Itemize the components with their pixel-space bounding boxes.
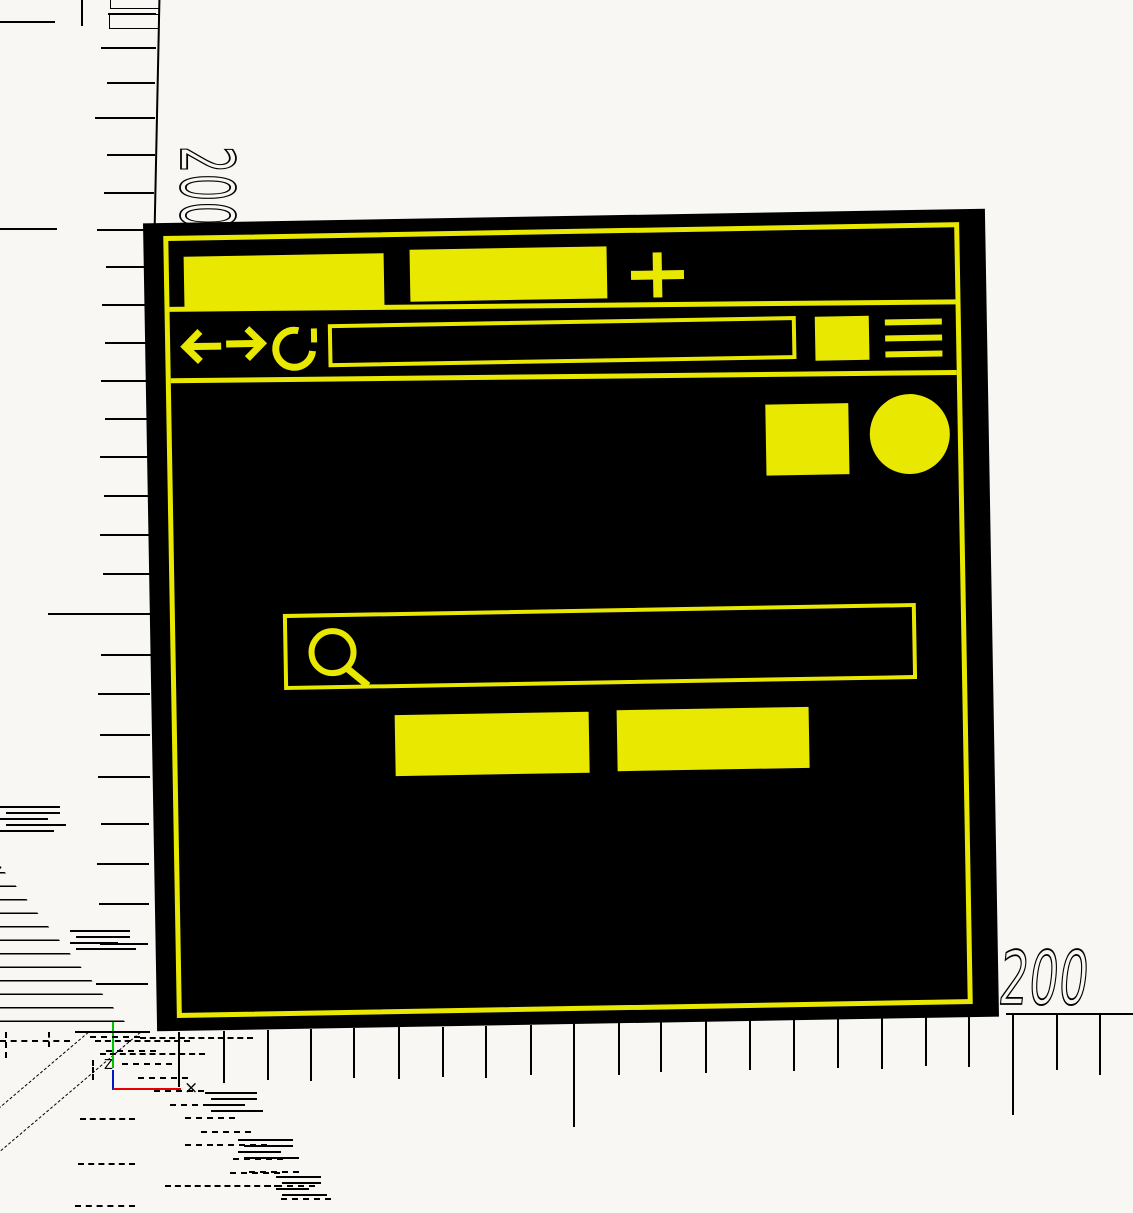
hamburger-icon bbox=[885, 318, 942, 325]
dashed-construction-line bbox=[75, 1205, 135, 1207]
url-bar[interactable] bbox=[328, 316, 797, 367]
plus-icon bbox=[653, 252, 663, 297]
ruler-tick-bottom bbox=[310, 1029, 312, 1081]
micro-glyph-line bbox=[6, 812, 60, 814]
x-axis-marker: × bbox=[184, 1080, 198, 1097]
left-ruler-label: 200 bbox=[164, 146, 247, 230]
reload-icon[interactable] bbox=[269, 321, 324, 374]
micro-glyph-line bbox=[238, 1151, 281, 1153]
micro-glyph-line bbox=[276, 1176, 321, 1178]
micro-glyph-line bbox=[282, 1182, 321, 1184]
hatch-dash-row bbox=[281, 1198, 331, 1200]
wireframe-line bbox=[75, 1031, 150, 1033]
micro-glyph-line bbox=[244, 1145, 293, 1147]
micro-glyph-line bbox=[76, 936, 130, 938]
hatch-dash-row bbox=[201, 1131, 251, 1133]
ruler-tick-bottom bbox=[530, 1025, 532, 1075]
dashed-construction-line bbox=[100, 1053, 205, 1055]
ruler-tick-left bbox=[48, 613, 151, 615]
ruler-tick-left bbox=[100, 734, 150, 736]
dashed-construction-line bbox=[5, 1032, 7, 1058]
dashed-construction-line bbox=[80, 1118, 135, 1120]
ruler-tick-left bbox=[101, 823, 149, 825]
ruler-tick-left bbox=[108, 13, 156, 15]
micro-glyph-line bbox=[6, 824, 66, 826]
dashed-diagonal-left bbox=[0, 1032, 89, 1213]
placeholder-square bbox=[765, 403, 849, 475]
micro-glyph-line bbox=[0, 806, 60, 808]
micro-glyph-line bbox=[0, 830, 54, 832]
dashed-construction-line bbox=[48, 1032, 50, 1047]
dashed-construction-line bbox=[78, 1163, 135, 1165]
ruler-tick-bottom bbox=[968, 1015, 970, 1067]
dashed-diagonal-right bbox=[0, 1032, 141, 1213]
ruler-tick-left bbox=[104, 192, 154, 194]
ruler-tick-bottom bbox=[1012, 1015, 1014, 1115]
ruler-tick-left bbox=[101, 47, 156, 49]
dashed-construction-line bbox=[95, 1040, 190, 1042]
hatch-dash-row bbox=[265, 1185, 315, 1187]
ruler-tick-bottom bbox=[660, 1022, 662, 1072]
ruler-tick-bottom bbox=[618, 1023, 620, 1075]
ruler-tick-left bbox=[95, 117, 155, 119]
hamburger-icon bbox=[885, 334, 942, 341]
bottom-ruler-label: 200 bbox=[995, 938, 1093, 1021]
ruler-tick-bottom bbox=[1099, 1015, 1101, 1075]
hatch-dash-row bbox=[185, 1117, 235, 1119]
ruler-tick-bottom bbox=[267, 1030, 269, 1080]
browser-window bbox=[143, 209, 999, 1032]
magnifier-icon bbox=[305, 626, 376, 689]
micro-glyph-line bbox=[0, 818, 48, 820]
hamburger-icon bbox=[885, 350, 942, 357]
micro-glyph-line bbox=[205, 1092, 257, 1094]
ruler-tick-bottom bbox=[925, 1016, 927, 1066]
micro-glyph-line bbox=[70, 930, 130, 932]
hatch-dash-row bbox=[106, 1050, 156, 1052]
hatch-dash-row bbox=[90, 1036, 140, 1038]
ruler-tick-left bbox=[104, 495, 152, 497]
button-1[interactable] bbox=[395, 712, 590, 776]
hatch-dash-row bbox=[249, 1171, 299, 1173]
ruler-tick-left bbox=[97, 863, 149, 865]
search-input[interactable] bbox=[283, 603, 917, 690]
ruler-tick-bottom bbox=[1056, 1015, 1058, 1070]
ruler-tick-left bbox=[101, 654, 151, 656]
micro-glyph-line bbox=[211, 1110, 263, 1112]
micro-glyph-line bbox=[276, 1188, 309, 1190]
micro-glyph-line bbox=[282, 1194, 327, 1196]
ruler-tick-left bbox=[99, 903, 149, 905]
hatch-dash-row bbox=[154, 1090, 204, 1092]
ruler-tick-bottom bbox=[353, 1028, 355, 1078]
ruler-tick-left bbox=[98, 693, 150, 695]
tab-1[interactable] bbox=[184, 253, 385, 309]
ruler-tick-left bbox=[103, 573, 151, 575]
ruler-tick-left bbox=[98, 776, 150, 778]
tab-2[interactable] bbox=[410, 246, 608, 301]
wireframe-fragment bbox=[110, 0, 160, 9]
ruler-tick-left bbox=[107, 82, 155, 84]
dashed-construction-line bbox=[165, 1185, 280, 1187]
wireframe-line bbox=[0, 228, 57, 230]
micro-glyph-line bbox=[205, 1104, 245, 1106]
dashed-construction-line bbox=[185, 1144, 213, 1146]
z-axis-blue bbox=[112, 1070, 114, 1090]
button-2[interactable] bbox=[617, 707, 810, 771]
ruler-tick-bottom bbox=[749, 1020, 751, 1070]
ruler-tick-left bbox=[100, 534, 152, 536]
micro-glyph-line bbox=[70, 942, 118, 944]
ruler-tick-bottom bbox=[398, 1027, 400, 1079]
forward-arrow-icon[interactable] bbox=[225, 325, 270, 363]
ruler-tick-left bbox=[96, 983, 148, 985]
ruler-tick-bottom bbox=[837, 1018, 839, 1068]
hatch-dash-row bbox=[138, 1077, 188, 1079]
extension-square-icon[interactable] bbox=[815, 316, 870, 361]
wireframe-line bbox=[0, 21, 55, 23]
ruler-tick-left bbox=[100, 456, 152, 458]
micro-glyph-line bbox=[76, 948, 136, 950]
ruler-tick-bottom bbox=[442, 1027, 444, 1077]
ruler-tick-bottom bbox=[573, 1024, 575, 1127]
wireframe-line bbox=[81, 0, 83, 26]
ruler-tick-bottom bbox=[705, 1021, 707, 1073]
micro-glyph-line bbox=[238, 1139, 293, 1141]
wireframe-line bbox=[1006, 1013, 1133, 1015]
dashed-construction-line bbox=[92, 1060, 94, 1080]
left-ruler-line bbox=[154, 0, 161, 231]
ruler-tick-left bbox=[107, 154, 155, 156]
wireframe-fragment bbox=[109, 14, 159, 29]
micro-glyph-line bbox=[211, 1098, 257, 1100]
micro-glyph-line bbox=[244, 1157, 299, 1159]
hatch-dash-row bbox=[122, 1063, 172, 1065]
ruler-tick-bottom bbox=[793, 1019, 795, 1071]
dashed-construction-line bbox=[0, 1040, 70, 1042]
ruler-tick-bottom bbox=[485, 1026, 487, 1078]
ruler-tick-bottom bbox=[881, 1017, 883, 1069]
back-arrow-icon[interactable] bbox=[178, 327, 225, 366]
dashed-construction-line bbox=[140, 1037, 253, 1039]
